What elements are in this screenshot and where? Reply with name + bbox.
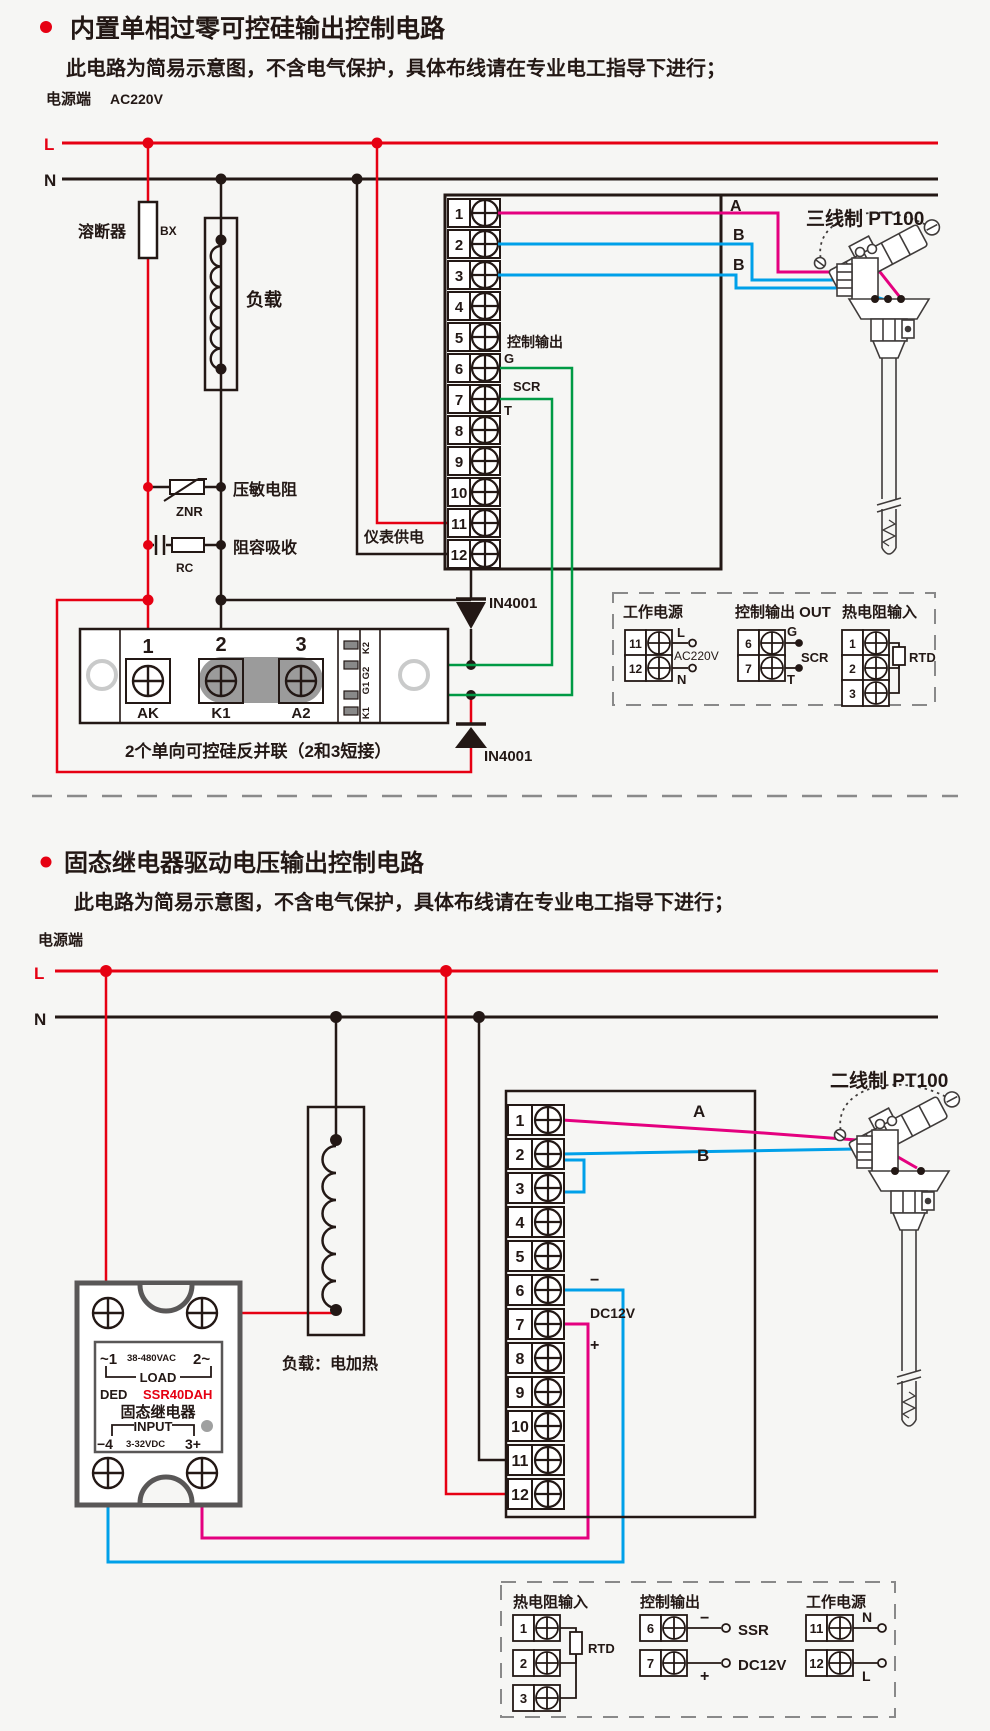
diode1: IN4001 bbox=[456, 595, 537, 629]
rc-label: 阻容吸收 bbox=[233, 538, 297, 557]
t6-label: 6 bbox=[455, 361, 463, 378]
s2t11-label: 11 bbox=[512, 1453, 529, 1470]
minus-label: − bbox=[590, 1272, 599, 1289]
slot-k1-label: K1 bbox=[361, 706, 372, 719]
legend2-out-title: 控制输出 bbox=[640, 1593, 700, 1611]
t2-label: 2 bbox=[455, 237, 463, 254]
legend1-g: G bbox=[787, 624, 797, 639]
legend2-dc12v: DC12V bbox=[738, 1657, 786, 1674]
legend1-rtd-title: 热电阻输入 bbox=[842, 603, 917, 621]
circuit1: L N 溶断器 BX bbox=[44, 135, 945, 772]
s2t12-label: 12 bbox=[511, 1487, 529, 1504]
s2t7-label: 7 bbox=[516, 1317, 525, 1334]
load-label: 负载 bbox=[246, 289, 282, 310]
t4-label: 4 bbox=[455, 299, 464, 316]
ssr-ac: 38-480VAC bbox=[127, 1353, 176, 1364]
legend2-t12: 12 bbox=[809, 1656, 823, 1671]
legend1-t11: 11 bbox=[629, 637, 642, 651]
fuse: 溶断器 BX bbox=[78, 202, 177, 258]
varistor: ZNR 压敏电阻 bbox=[164, 479, 297, 519]
ssr-led bbox=[201, 1420, 213, 1432]
legend1-rt3: 3 bbox=[849, 687, 856, 701]
power-voltage-label: AC220V bbox=[110, 91, 164, 107]
ssr-ded: DED bbox=[100, 1387, 127, 1402]
ssr-in2: 3+ bbox=[185, 1436, 201, 1452]
module-a2-label: A2 bbox=[291, 705, 310, 722]
rc-code-label: RC bbox=[176, 561, 194, 575]
t12-label: 12 bbox=[451, 547, 468, 564]
sensor1-label: 三线制 PT100 bbox=[806, 207, 924, 230]
t9-label: 9 bbox=[455, 454, 463, 471]
fuse-label: 溶断器 bbox=[78, 222, 127, 241]
legend1-power-title: 工作电源 bbox=[623, 603, 683, 621]
legend2-rtd: RTD bbox=[588, 1641, 615, 1656]
scr-module: 1 2 3 AK K1 A2 K2 G2 G1 K1 bbox=[80, 629, 448, 723]
module-1-label: 1 bbox=[142, 636, 153, 658]
line-n-label: N bbox=[44, 171, 56, 190]
varistor-code-label: ZNR bbox=[176, 504, 203, 519]
power-side-label: 电源端 bbox=[46, 90, 91, 108]
module-2-label: 2 bbox=[215, 634, 226, 656]
bullet-icon bbox=[40, 21, 52, 33]
s2t6-label: 6 bbox=[516, 1283, 525, 1300]
load2: 负载：电加热 bbox=[282, 1107, 378, 1373]
legend2-t6: 6 bbox=[647, 1621, 654, 1636]
section2-title: 固态继电器驱动电压输出控制电路 bbox=[64, 849, 425, 877]
fuse-code-label: BX bbox=[160, 224, 177, 238]
plus-label: + bbox=[590, 1337, 599, 1354]
wiring-diagram-page: 内置单相过零可控硅输出控制电路 此电路为简易示意图，不含电气保护，具体布线请在专… bbox=[0, 0, 990, 1731]
control-output-label: 控制输出 bbox=[507, 334, 563, 350]
red-junction-dots bbox=[143, 138, 383, 606]
load1: 负载 bbox=[205, 218, 282, 390]
line-l-label: L bbox=[44, 135, 54, 154]
ssr-ac2: 2~ bbox=[193, 1351, 210, 1368]
legend2-plus: + bbox=[700, 1668, 709, 1685]
legend1-t7: 7 bbox=[745, 662, 752, 676]
legend1-rtd: RTD bbox=[909, 650, 936, 665]
legend1: 工作电源 11 12 L AC220V N 控制输出 OUT 6 7 G SCR… bbox=[613, 593, 936, 706]
black-junction-dots bbox=[216, 174, 477, 701]
t3-label: 3 bbox=[455, 268, 463, 285]
rc-snubber: RC 阻容吸收 bbox=[156, 535, 297, 575]
module-caption: 2个单向可控硅反并联（2和3短接） bbox=[125, 741, 391, 761]
t10-label: 10 bbox=[451, 485, 468, 502]
section1-title: 内置单相过零可控硅输出控制电路 bbox=[70, 14, 446, 43]
legend2-power-title: 工作电源 bbox=[806, 1593, 866, 1611]
diode2: IN4001 bbox=[455, 724, 532, 765]
terminal-strip1: 1 2 3 4 5 6 7 8 9 10 11 12 bbox=[448, 199, 500, 568]
line-l2-label: L bbox=[34, 964, 44, 983]
power-side-label2: 电源端 bbox=[38, 931, 83, 949]
section2-header: 固态继电器驱动电压输出控制电路 此电路为简易示意图，不含电气保护，具体布线请在专… bbox=[38, 849, 734, 949]
legend2-rt1: 1 bbox=[520, 1621, 527, 1636]
s2t8-label: 8 bbox=[516, 1351, 525, 1368]
legend1-t12: 12 bbox=[629, 662, 643, 676]
s2t1-label: 1 bbox=[516, 1113, 525, 1130]
diode2-label: IN4001 bbox=[484, 748, 532, 765]
dc12v-label: DC12V bbox=[590, 1305, 636, 1321]
meter-supply-label: 仪表供电 bbox=[363, 528, 424, 546]
t1-label: 1 bbox=[455, 206, 463, 223]
legend1-l: L bbox=[677, 625, 685, 640]
legend1-rt1: 1 bbox=[849, 637, 856, 651]
legend1-volt: AC220V bbox=[674, 649, 719, 663]
s2t5-label: 5 bbox=[516, 1249, 525, 1266]
wire-b1-label: B bbox=[733, 227, 745, 244]
bullet-icon bbox=[41, 857, 52, 868]
ssr-model: SSR40DAH bbox=[143, 1387, 212, 1402]
legend2-l: L bbox=[862, 1668, 871, 1684]
section1-header: 内置单相过零可控硅输出控制电路 此电路为简易示意图，不含电气保护，具体布线请在专… bbox=[40, 14, 726, 108]
legend1-t: T bbox=[787, 672, 795, 687]
legend1-scr: SCR bbox=[801, 650, 829, 665]
s2t10-label: 10 bbox=[511, 1419, 529, 1436]
legend2: 热电阻输入 1 2 3 RTD 控制输出 6 7 − SSR + DC12 bbox=[501, 1582, 895, 1717]
legend1-n: N bbox=[677, 672, 686, 687]
ssr-input: INPUT bbox=[134, 1419, 173, 1434]
ssr-module: ~1 38-480VAC 2~ LOAD DED SSR40DAH 固态继电器 … bbox=[77, 1283, 240, 1505]
scr-label: SCR bbox=[513, 379, 541, 394]
sensor2-label: 二线制 PT100 bbox=[830, 1069, 948, 1092]
pt100-3wire bbox=[815, 204, 946, 554]
neutral-wires bbox=[148, 179, 486, 668]
load2-label: 负载：电加热 bbox=[282, 1354, 378, 1373]
module-k1-label: K1 bbox=[211, 705, 230, 722]
legend2-t11: 11 bbox=[810, 1621, 824, 1636]
legend2-ssr: SSR bbox=[738, 1622, 769, 1639]
pt100-2wire bbox=[835, 1076, 966, 1426]
wire-a-label: A bbox=[730, 198, 742, 215]
s2t4-label: 4 bbox=[516, 1215, 525, 1232]
s2t9-label: 9 bbox=[516, 1385, 525, 1402]
legend1-out-title: 控制输出 OUT bbox=[735, 603, 831, 621]
ssr-ac1: ~1 bbox=[100, 1351, 117, 1368]
t8-label: 8 bbox=[455, 423, 463, 440]
legend1-rt2: 2 bbox=[849, 662, 856, 676]
legend2-rtd-title: 热电阻输入 bbox=[513, 1593, 588, 1611]
wire-b2-label: B bbox=[697, 1146, 709, 1165]
t11-label: 11 bbox=[451, 516, 467, 533]
varistor-label: 压敏电阻 bbox=[233, 480, 297, 499]
terminal-strip2: 1 2 3 4 5 6 7 8 9 10 11 12 bbox=[508, 1105, 564, 1509]
line-n2-label: N bbox=[34, 1010, 46, 1029]
module-ak-label: AK bbox=[137, 705, 159, 722]
ssr-load: LOAD bbox=[140, 1370, 177, 1385]
ssr-in1: −4 bbox=[97, 1436, 113, 1452]
t5-label: 5 bbox=[455, 330, 463, 347]
circuit2: L N 负载：电加热 bbox=[34, 964, 965, 1717]
section2-subtitle: 此电路为简易示意图，不含电气保护，具体布线请在专业电工指导下进行； bbox=[74, 890, 734, 914]
s2t2-label: 2 bbox=[516, 1147, 525, 1164]
ssr-vdc: 3-32VDC bbox=[126, 1439, 165, 1450]
wire-a2-label: A bbox=[693, 1102, 705, 1121]
t7-label: 7 bbox=[455, 392, 463, 409]
diode1-label: IN4001 bbox=[489, 595, 537, 612]
gate-label: G bbox=[504, 351, 514, 366]
slot-g1-label: G1 bbox=[361, 681, 372, 694]
module-3-label: 3 bbox=[295, 634, 306, 656]
t-label: T bbox=[504, 403, 512, 418]
wire-b2-label: B bbox=[733, 257, 745, 274]
legend2-n: N bbox=[862, 1609, 872, 1625]
legend2-rt2: 2 bbox=[520, 1656, 527, 1671]
legend1-t6: 6 bbox=[745, 637, 752, 651]
section1-subtitle: 此电路为简易示意图，不含电气保护，具体布线请在专业电工指导下进行； bbox=[66, 56, 726, 80]
slot-g2-label: G2 bbox=[361, 667, 372, 680]
legend2-t7: 7 bbox=[647, 1656, 654, 1671]
legend2-minus: − bbox=[700, 1610, 709, 1627]
slot-k2-label: K2 bbox=[361, 642, 372, 654]
legend2-rt3: 3 bbox=[520, 1691, 527, 1706]
s2t3-label: 3 bbox=[516, 1181, 525, 1198]
